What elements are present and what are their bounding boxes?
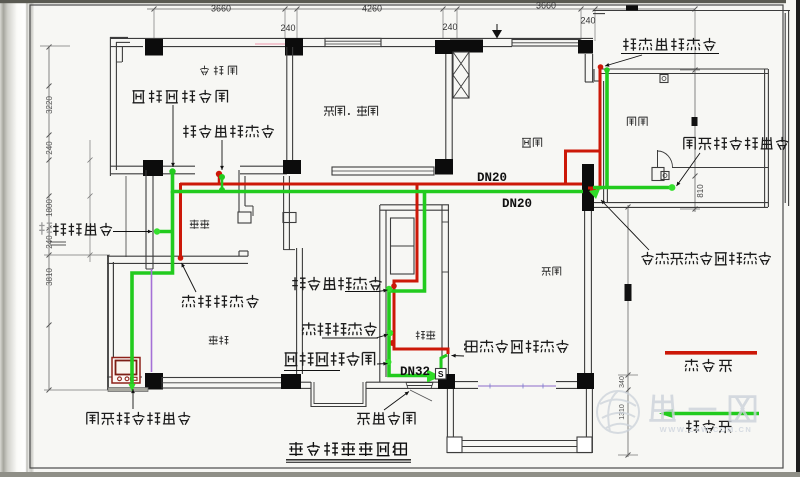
svg-text:WWW.ZXW.COM.CN: WWW.ZXW.COM.CN [660, 425, 753, 434]
svg-text:1800: 1800 [45, 199, 54, 217]
svg-text:240: 240 [442, 22, 457, 32]
svg-text:3660: 3660 [536, 1, 556, 11]
svg-text:340: 340 [619, 376, 626, 388]
svg-text:4260: 4260 [362, 4, 382, 14]
svg-text:DN32: DN32 [400, 365, 430, 379]
svg-text:3660: 3660 [211, 4, 231, 14]
svg-text:240: 240 [45, 141, 54, 155]
svg-text:810: 810 [696, 184, 705, 198]
svg-text:S: S [438, 369, 444, 379]
svg-text:240: 240 [580, 16, 595, 26]
svg-text:3220: 3220 [45, 96, 54, 114]
svg-text:3810: 3810 [45, 268, 54, 286]
svg-text:DN20: DN20 [502, 197, 532, 211]
svg-text:240: 240 [280, 23, 295, 33]
svg-text:DN20: DN20 [477, 171, 507, 185]
